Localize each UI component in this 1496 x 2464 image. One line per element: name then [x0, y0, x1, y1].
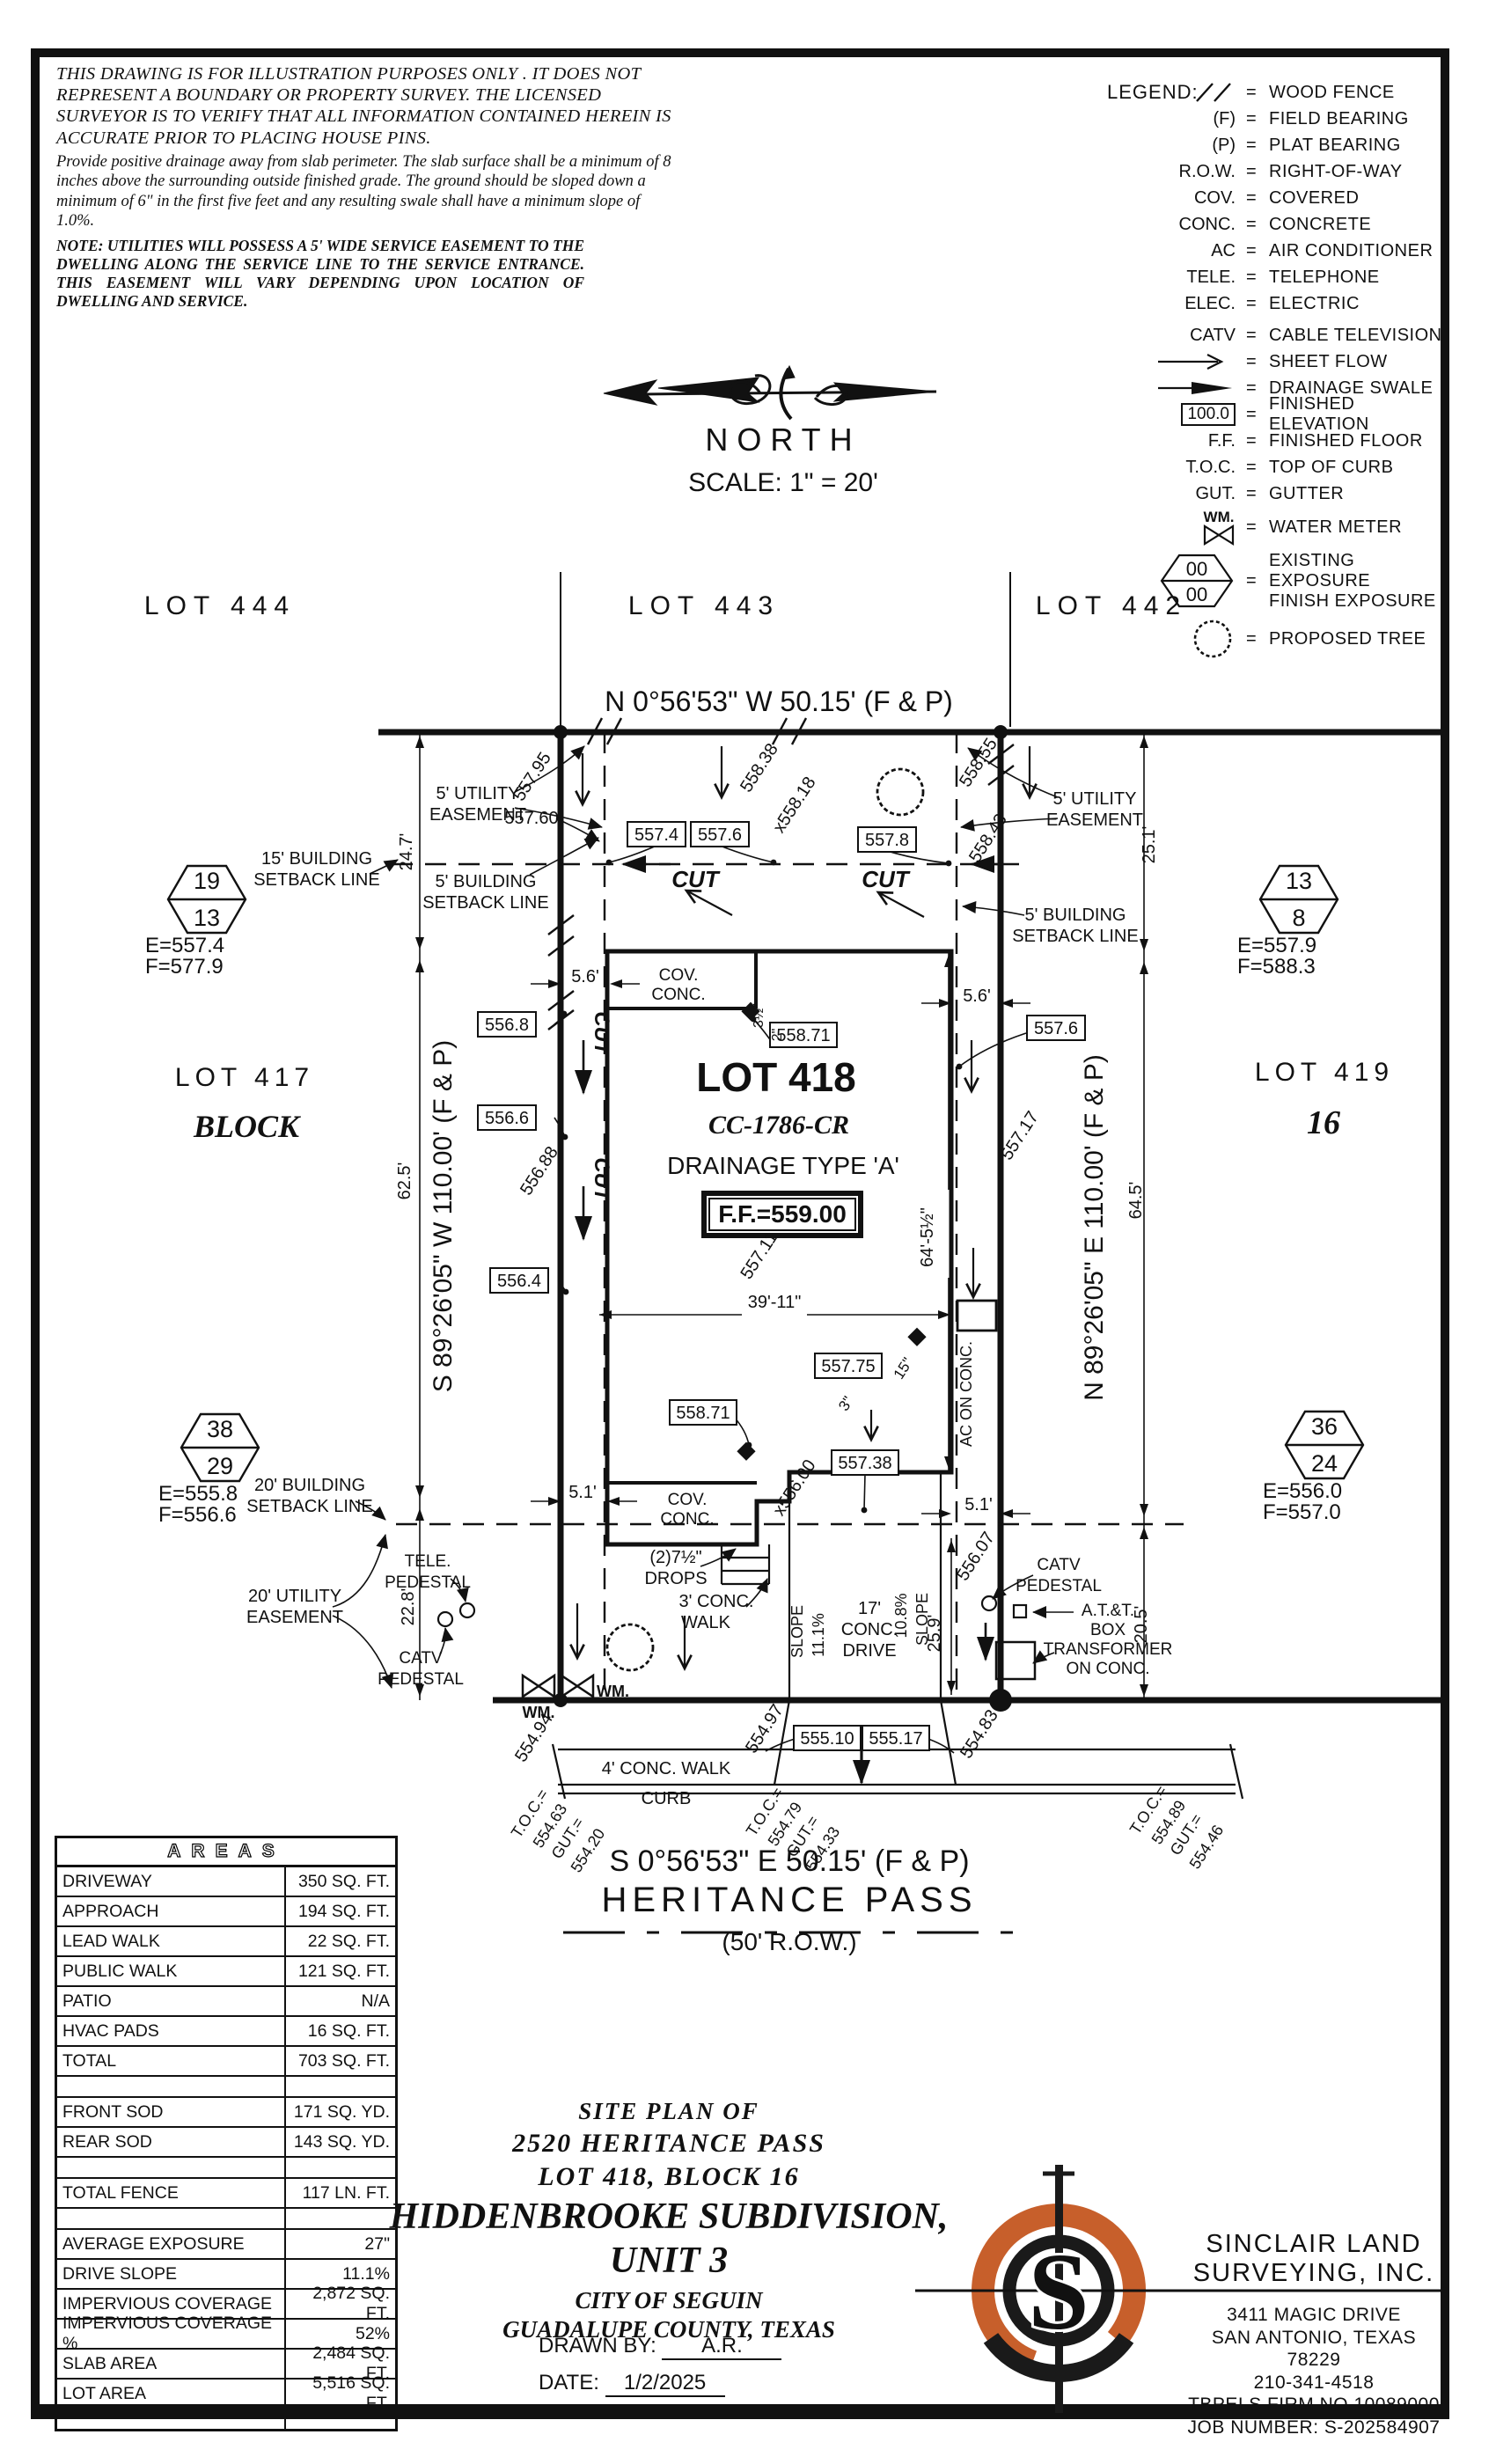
date-value: 1/2/2025: [605, 2371, 725, 2397]
disclaimer-main: THIS DRAWING IS FOR ILLUSTRATION PURPOSE…: [56, 63, 672, 149]
legend-row: = PROPOSED TREE: [1102, 614, 1454, 664]
legend: LEGEND: = WOOD FENCE (F) = FIELD BEARING…: [1102, 77, 1454, 664]
plat-label: DRIVE: [842, 1641, 896, 1661]
plat-label: 10.8%: [892, 1593, 910, 1638]
equals-sign: =: [1246, 162, 1269, 182]
equals-sign: =: [1246, 215, 1269, 235]
legend-label: GUTTER: [1269, 484, 1344, 504]
legend-symbol: R.O.W.: [1102, 162, 1246, 182]
plat-label: LOT 443: [628, 591, 780, 620]
exposure-value: F=588.3: [1237, 955, 1316, 979]
att-box-icon: [1014, 1605, 1026, 1617]
legend-label: AIR CONDITIONER: [1269, 241, 1433, 261]
legend-symbol: T.O.C.: [1102, 458, 1246, 478]
plat-label: PEDESTAL: [385, 1573, 471, 1592]
legend-row: ELEC. = ELECTRIC: [1102, 290, 1454, 317]
legend-symbol: CATV: [1102, 326, 1246, 346]
exposure-value: 24: [1311, 1450, 1338, 1477]
equals-sign: =: [1246, 294, 1269, 314]
exposure-value: E=555.8: [158, 1482, 238, 1506]
elevation-box-value: 557.75: [821, 1357, 875, 1376]
equals-sign: =: [1246, 629, 1269, 649]
table-row: APPROACH194 SQ. FT.: [57, 1897, 395, 1927]
legend-symbol: (F): [1102, 109, 1246, 129]
drainage-swale-icon: [1102, 378, 1246, 399]
legend-label: CABLE TELEVISION: [1269, 326, 1442, 346]
plat-label: F.F.=559.00: [718, 1200, 847, 1228]
elevation-box-value: 556.6: [485, 1109, 529, 1128]
exposure-value: E=557.4: [145, 934, 224, 957]
plat-label: 20' UTILITY: [248, 1587, 341, 1606]
plat-label: x556.00: [769, 1456, 819, 1520]
table-row: FRONT SOD171 SQ. YD.: [57, 2098, 395, 2128]
table-row: HVAC PADS16 SQ. FT.: [57, 2017, 395, 2047]
plat-label: 5.6': [963, 986, 991, 1006]
finished-elevation-icon: 100.0: [1102, 403, 1246, 426]
legend-label: EXISTING EXPOSURE FINISH EXPOSURE: [1269, 551, 1454, 612]
plat-label: LOT 419: [1255, 1058, 1394, 1087]
surveyor-name: SURVEYING, INC.: [1184, 2259, 1444, 2288]
title-city: CITY OF SEGUIN: [378, 2287, 959, 2314]
legend-label: PROPOSED TREE: [1269, 629, 1426, 649]
legend-title: LEGEND:: [1107, 81, 1199, 104]
drawn-by-block: DRAWN BY: A.R. DATE: 1/2/2025: [539, 2334, 781, 2408]
legend-row: COV. = COVERED: [1102, 185, 1454, 211]
equals-sign: =: [1246, 268, 1269, 288]
elevation-box-value: 557.6: [698, 825, 742, 845]
site-plan-sheet: { "disclaimer": { "main": "THIS DRAWING …: [0, 0, 1496, 2464]
legend-symbol: GUT.: [1102, 484, 1246, 504]
plat-label: N 0°56'53" W 50.15' (F & P): [605, 686, 953, 717]
svg-text:00: 00: [1186, 583, 1207, 605]
plat-label: CUT: [590, 1157, 613, 1203]
exposure-value: E=557.9: [1237, 934, 1316, 957]
surveyor-job-number: JOB NUMBER: S-202584907: [1184, 2416, 1444, 2439]
sheet-flow-icon: [1102, 351, 1246, 372]
date-label: DATE:: [539, 2371, 599, 2394]
plat-label: 557.95: [510, 749, 555, 804]
equals-sign: =: [1246, 405, 1269, 425]
equals-sign: =: [1246, 188, 1269, 209]
table-row: LOT AREA5,516 SQ. FT.: [57, 2380, 395, 2409]
plat-label: 62.5': [395, 1162, 414, 1200]
catv-pedestal-icon: [982, 1596, 996, 1610]
plat-label: 24.7': [397, 833, 416, 871]
legend-row: 0000 = EXISTING EXPOSURE FINISH EXPOSURE: [1102, 547, 1454, 614]
plat-label: 64.5': [1126, 1182, 1146, 1220]
legend-row: = SHEET FLOW: [1102, 348, 1454, 375]
plat-label: CUT: [671, 866, 721, 892]
plat-label: ON CONC.: [1067, 1660, 1150, 1678]
plat-label: BOX: [1090, 1621, 1126, 1639]
plat-label: 558.43: [965, 810, 1011, 866]
equals-sign: =: [1246, 136, 1269, 156]
title-block: SITE PLAN OF 2520 HERITANCE PASS LOT 418…: [378, 2098, 959, 2343]
plat-label: CUT: [590, 1011, 613, 1057]
elevation-box-value: 557.6: [1034, 1019, 1078, 1038]
elevation-box-value: 556.4: [497, 1272, 541, 1291]
legend-symbol: AC: [1102, 241, 1246, 261]
exposure-value: 13: [194, 905, 220, 931]
legend-row: R.O.W. = RIGHT-OF-WAY: [1102, 158, 1454, 185]
table-row: LEAD WALK22 SQ. FT.: [57, 1927, 395, 1957]
table-row: [57, 2077, 395, 2098]
legend-symbol: (P): [1102, 136, 1246, 156]
plat-label: 5' BUILDING: [436, 872, 537, 891]
plat-label: 5.6': [571, 967, 599, 986]
title-address: 2520 HERITANCE PASS: [378, 2129, 959, 2159]
tele-pedestal-icon: [460, 1603, 474, 1617]
elevation-box-value: 556.8: [485, 1016, 529, 1035]
plat-label: LOT 417: [175, 1063, 314, 1092]
elevation-box-value: 558.71: [676, 1404, 730, 1423]
plat-label: CONC.: [841, 1620, 898, 1639]
plat-label: SETBACK LINE: [246, 1497, 372, 1516]
plat-label: 558.38: [737, 740, 782, 796]
plat-label: DRAINAGE TYPE 'A': [667, 1152, 899, 1179]
legend-row: 100.0 = FINISHED ELEVATION: [1102, 401, 1454, 428]
plat-label: PEDESTAL: [378, 1670, 464, 1689]
legend-label: TOP OF CURB: [1269, 458, 1393, 478]
exposure-value: F=577.9: [145, 955, 224, 979]
plat-label: S 89°26'05" W 110.00' (F & P): [429, 1040, 458, 1392]
exposure-value: 38: [207, 1416, 233, 1442]
disclaimer-note: NOTE: UTILITIES WILL POSSESS A 5' WIDE S…: [56, 237, 584, 311]
plat-label: CUT: [862, 866, 911, 892]
disclaimer-block: THIS DRAWING IS FOR ILLUSTRATION PURPOSE…: [56, 63, 672, 311]
plat-label: (50' R.O.W.): [722, 1928, 856, 1955]
areas-table: AREAS DRIVEWAY350 SQ. FT. APPROACH194 SQ…: [55, 1836, 398, 2431]
areas-table-title: AREAS: [57, 1838, 395, 1867]
plat-label: 11.1%: [810, 1613, 827, 1657]
table-row: DRIVEWAY350 SQ. FT.: [57, 1867, 395, 1897]
plat-label: 17': [858, 1599, 881, 1618]
equals-sign: =: [1246, 109, 1269, 129]
table-row: TOTAL FENCE117 LN. FT.: [57, 2179, 395, 2209]
plat-label: LOT 444: [144, 591, 296, 620]
surveyor-name: SINCLAIR LAND: [1184, 2230, 1444, 2259]
legend-label: CONCRETE: [1269, 215, 1371, 235]
plat-label: 3½": [752, 1003, 766, 1028]
plat-label: 2": [770, 1029, 785, 1042]
table-row: AVERAGE EXPOSURE27": [57, 2230, 395, 2260]
surveyor-address: 3411 MAGIC DRIVE: [1184, 2304, 1444, 2327]
legend-row: F.F. = FINISHED FLOOR: [1102, 428, 1454, 454]
proposed-tree-icon: [607, 1624, 653, 1670]
table-row: PATION/A: [57, 1987, 395, 2017]
legend-row: AC = AIR CONDITIONER: [1102, 238, 1454, 264]
legend-label: RIGHT-OF-WAY: [1269, 162, 1403, 182]
plat-label: DROPS: [644, 1569, 707, 1588]
legend-label: PLAT BEARING: [1269, 136, 1401, 156]
plat-label: 5.1': [964, 1495, 993, 1514]
plat-label: TRANSFORMER: [1044, 1640, 1173, 1659]
legend-label: WOOD FENCE: [1269, 83, 1395, 103]
plat-label: 557.17: [997, 1108, 1043, 1163]
plat-label: 25.1': [1140, 826, 1159, 864]
plat-label: 556.07: [953, 1529, 999, 1584]
title-lot-block: LOT 418, BLOCK 16: [378, 2162, 959, 2192]
drawn-by-value: A.R.: [662, 2334, 781, 2360]
equals-sign: =: [1246, 431, 1269, 451]
tele-pedestal-icon: [438, 1612, 452, 1626]
exposure-value: 13: [1286, 868, 1312, 894]
plat-label: 5.1': [568, 1483, 597, 1502]
plat-label: 20.5': [1132, 1606, 1151, 1644]
exposure-hexagon-icon: 0000: [1102, 550, 1246, 612]
legend-label: FINISHED ELEVATION: [1269, 394, 1454, 435]
plat-label: BLOCK: [193, 1109, 302, 1144]
plat-label: 22.8': [399, 1588, 418, 1626]
exposure-value: E=556.0: [1263, 1479, 1342, 1503]
plat-label: 4' CONC. WALK: [602, 1759, 731, 1778]
surveyor-address: SAN ANTONIO, TEXAS 78229: [1184, 2327, 1444, 2372]
plat-label: CC-1786-CR: [708, 1111, 849, 1140]
elevation-boxes: 557.4557.6557.8556.8556.6556.4557.6558.7…: [478, 822, 1085, 1750]
exposure-value: 29: [207, 1453, 233, 1479]
elevation-box-value: 555.10: [800, 1729, 854, 1749]
plat-label: 20' BUILDING: [254, 1476, 365, 1495]
plat-label: SETBACK LINE: [1012, 927, 1138, 946]
legend-label: SHEET FLOW: [1269, 352, 1388, 372]
logo-letter: S: [1028, 2232, 1089, 2353]
legend-row: TELE. = TELEPHONE: [1102, 264, 1454, 290]
equals-sign: =: [1246, 484, 1269, 504]
legend-row: T.O.C. = TOP OF CURB: [1102, 454, 1454, 480]
plat-label: N 89°26'05" E 110.00' (F & P): [1080, 1054, 1109, 1401]
surveyor-phone: 210-341-4518: [1184, 2372, 1444, 2394]
plat-label: 3' CONC.: [679, 1592, 754, 1611]
plat-label: 554.83: [957, 1706, 1002, 1762]
legend-row: (F) = FIELD BEARING: [1102, 106, 1454, 132]
table-row: [57, 2158, 395, 2179]
plat-label: WALK: [681, 1613, 731, 1632]
exposure-value: 19: [194, 868, 220, 894]
plat-label: 15": [891, 1354, 917, 1382]
plat-label: 5' BUILDING: [1025, 906, 1126, 925]
plat-label: HERITANCE PASS: [601, 1881, 977, 1919]
equals-sign: =: [1246, 517, 1269, 538]
equals-sign: =: [1246, 571, 1269, 591]
equals-sign: =: [1246, 378, 1269, 399]
exposure-value: F=556.6: [158, 1503, 237, 1527]
plat-label: 64'-5½": [918, 1207, 937, 1267]
plat-label: 5' UTILITY: [1053, 789, 1137, 809]
title-subdivision: HIDDENBROOKE SUBDIVISION,: [378, 2196, 959, 2238]
plat-label: EASEMENT: [1046, 810, 1143, 830]
legend-row: CONC. = CONCRETE: [1102, 211, 1454, 238]
legend-row: WM. = WATER METER: [1102, 507, 1454, 547]
plat-label: CONC.: [651, 986, 705, 1004]
exposure-value: 8: [1292, 905, 1305, 931]
drawn-by-label: DRAWN BY:: [539, 2334, 656, 2358]
plat-label: 5' UTILITY: [436, 784, 520, 803]
plat-label: 558.55: [956, 735, 1001, 790]
surveyor-firm: TBPELS FIRM NO.10089000: [1184, 2394, 1444, 2416]
plat-label: (2)7½": [649, 1548, 701, 1567]
ac-unit-icon: [957, 1301, 996, 1331]
legend-label: COVERED: [1269, 188, 1359, 209]
table-row: REAR SOD143 SQ. YD.: [57, 2128, 395, 2158]
plat-label: LOT 418: [696, 1054, 856, 1100]
plat-label: TELE.: [405, 1552, 451, 1571]
plat-label: COV.: [668, 1491, 708, 1509]
elevation-box-value: 555.17: [869, 1729, 922, 1749]
plat-label: 39'-11": [748, 1293, 802, 1312]
boundary-lines: [378, 572, 1443, 1712]
plat-label: SLOPE: [788, 1605, 806, 1658]
plat-label: 3": [835, 1393, 856, 1413]
plat-label: CATV: [399, 1649, 443, 1668]
svg-text:00: 00: [1186, 558, 1207, 580]
water-meter-legend-icon: WM.: [1102, 510, 1246, 546]
plat-label: CONC.: [660, 1510, 714, 1529]
exposure-value: 36: [1311, 1413, 1338, 1440]
plat-label: EASEMENT: [246, 1608, 343, 1627]
equals-sign: =: [1246, 458, 1269, 478]
table-row: TOTAL703 SQ. FT.: [57, 2047, 395, 2077]
legend-row: (P) = PLAT BEARING: [1102, 132, 1454, 158]
north-arrow-icon: [604, 366, 936, 419]
legend-symbol: CONC.: [1102, 215, 1246, 235]
equals-sign: =: [1246, 352, 1269, 372]
plat-label: WM.: [597, 1683, 629, 1700]
equals-sign: =: [1246, 241, 1269, 261]
plat-label: 15' BUILDING: [261, 849, 372, 869]
plat-label: COV.: [659, 966, 699, 985]
legend-label: FINISHED FLOOR: [1269, 431, 1423, 451]
plat-label: 16: [1307, 1104, 1340, 1141]
proposed-tree-legend-icon: [1102, 616, 1246, 662]
plat-label: CATV: [1037, 1556, 1081, 1574]
plat-label: SCALE: 1" = 20': [688, 468, 878, 497]
legend-label: WATER METER: [1269, 517, 1402, 538]
equals-sign: =: [1246, 326, 1269, 346]
plat-label: PEDESTAL: [1016, 1577, 1102, 1595]
plat-label: x558.18: [769, 774, 819, 837]
table-row: [57, 2209, 395, 2230]
legend-symbol: COV.: [1102, 188, 1246, 209]
legend-label: FIELD BEARING: [1269, 109, 1409, 129]
surveyor-block: SINCLAIR LAND SURVEYING, INC. 3411 MAGIC…: [1184, 2230, 1444, 2438]
plat-label: 556.88: [517, 1143, 562, 1199]
legend-row: CATV = CABLE TELEVISION: [1102, 322, 1454, 348]
legend-symbol: TELE.: [1102, 268, 1246, 288]
plat-label: CURB: [642, 1789, 692, 1808]
title-line: SITE PLAN OF: [378, 2098, 959, 2125]
plat-label: SETBACK LINE: [422, 893, 548, 913]
table-row: PUBLIC WALK121 SQ. FT.: [57, 1957, 395, 1987]
title-unit: UNIT 3: [378, 2240, 959, 2282]
legend-label: TELEPHONE: [1269, 268, 1380, 288]
plat-label: 25.9': [925, 1615, 944, 1653]
legend-label: ELECTRIC: [1269, 294, 1360, 314]
legend-row: GUT. = GUTTER: [1102, 480, 1454, 507]
plat-label: A.T.&T.: [1082, 1602, 1134, 1620]
elevation-box-value: 557.4: [634, 825, 678, 845]
exposure-value: F=557.0: [1263, 1500, 1341, 1524]
plat-label: AC ON CONC.: [957, 1341, 975, 1447]
elevation-box-value: 557.38: [838, 1454, 891, 1473]
legend-symbol: F.F.: [1102, 431, 1246, 451]
plat-label: 557.60: [504, 809, 558, 828]
disclaimer-drainage: Provide positive drainage away from slab…: [56, 152, 672, 231]
proposed-tree-icon: [877, 769, 923, 815]
elevation-box-value: 557.8: [865, 831, 909, 850]
plat-label: SETBACK LINE: [253, 870, 379, 890]
legend-symbol: ELEC.: [1102, 294, 1246, 314]
plat-label: NORTH: [705, 422, 861, 458]
equals-sign: =: [1246, 83, 1269, 103]
